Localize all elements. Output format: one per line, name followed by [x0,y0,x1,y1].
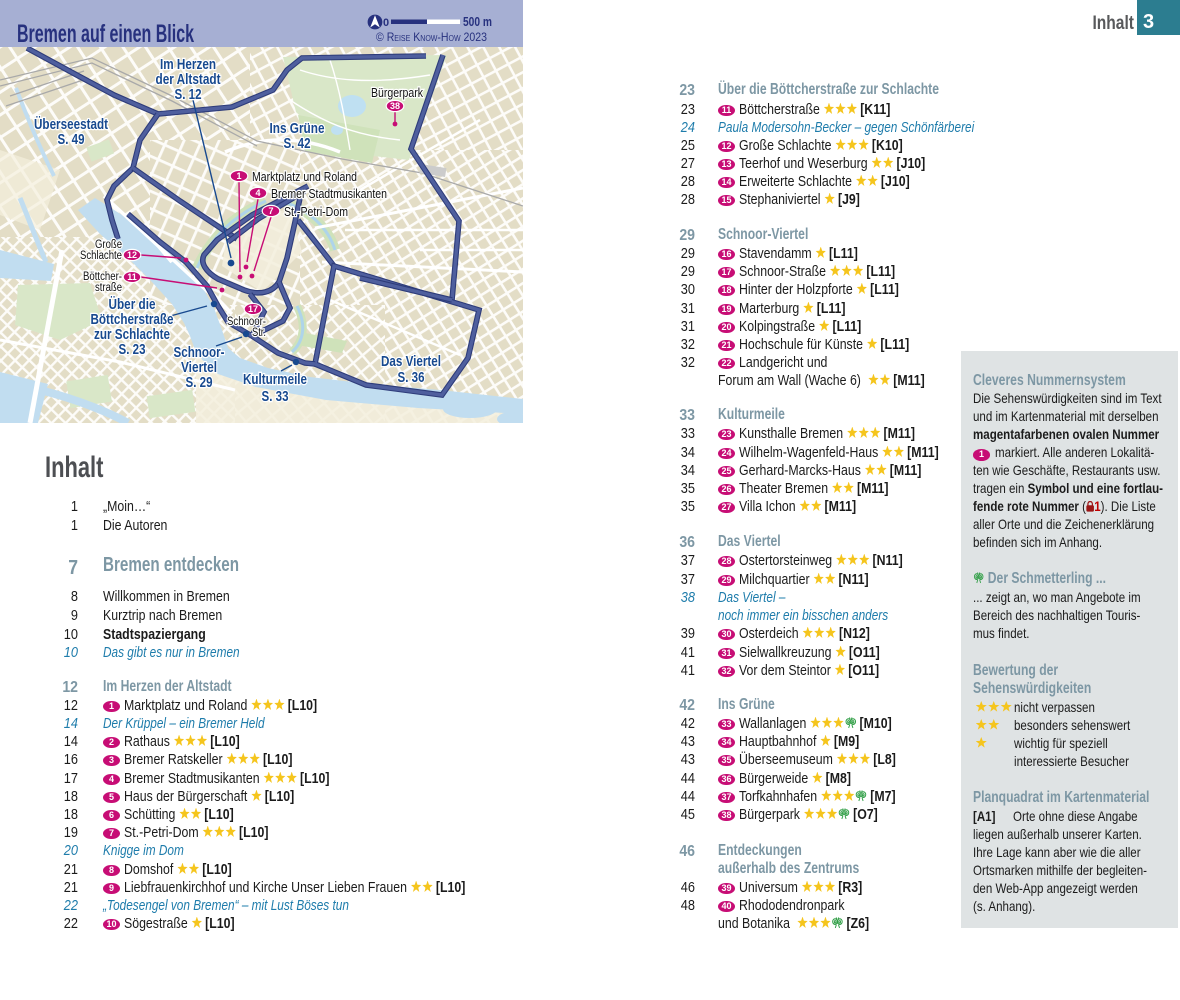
svg-text:S. 23: S. 23 [119,341,146,358]
svg-text:Bürgerpark: Bürgerpark [371,86,424,100]
svg-text:S. 49: S. 49 [58,131,85,148]
svg-text:17: 17 [248,304,258,314]
svg-text:1: 1 [236,171,241,181]
svg-text:4: 4 [255,188,260,198]
svg-text:Bremen auf einen Blick: Bremen auf einen Blick [17,20,194,48]
svg-text:Str.: Str. [252,327,266,339]
svg-text:Das Viertel: Das Viertel [381,353,441,370]
svg-text:38: 38 [390,101,400,111]
svg-text:Schlachte: Schlachte [80,250,122,262]
svg-text:Kulturmeile: Kulturmeile [243,371,307,388]
svg-text:S. 12: S. 12 [175,86,202,103]
svg-text:© Reise Know-How 2023: © Reise Know-How 2023 [376,30,487,44]
svg-text:Marktplatz und Roland: Marktplatz und Roland [252,170,357,184]
svg-text:11: 11 [127,272,137,282]
svg-text:12: 12 [127,250,137,260]
svg-text:S. 42: S. 42 [284,135,311,152]
svg-text:St.-Petri-Dom: St.-Petri-Dom [284,205,348,219]
svg-text:Bremer Stadtmusikanten: Bremer Stadtmusikanten [271,187,387,201]
svg-text:S. 36: S. 36 [398,369,425,386]
svg-text:500 m: 500 m [463,15,492,29]
svg-text:0: 0 [383,17,389,29]
svg-text:7: 7 [268,206,273,216]
svg-text:S. 33: S. 33 [262,388,289,405]
svg-text:S. 29: S. 29 [186,374,213,391]
svg-text:straße: straße [95,282,122,294]
